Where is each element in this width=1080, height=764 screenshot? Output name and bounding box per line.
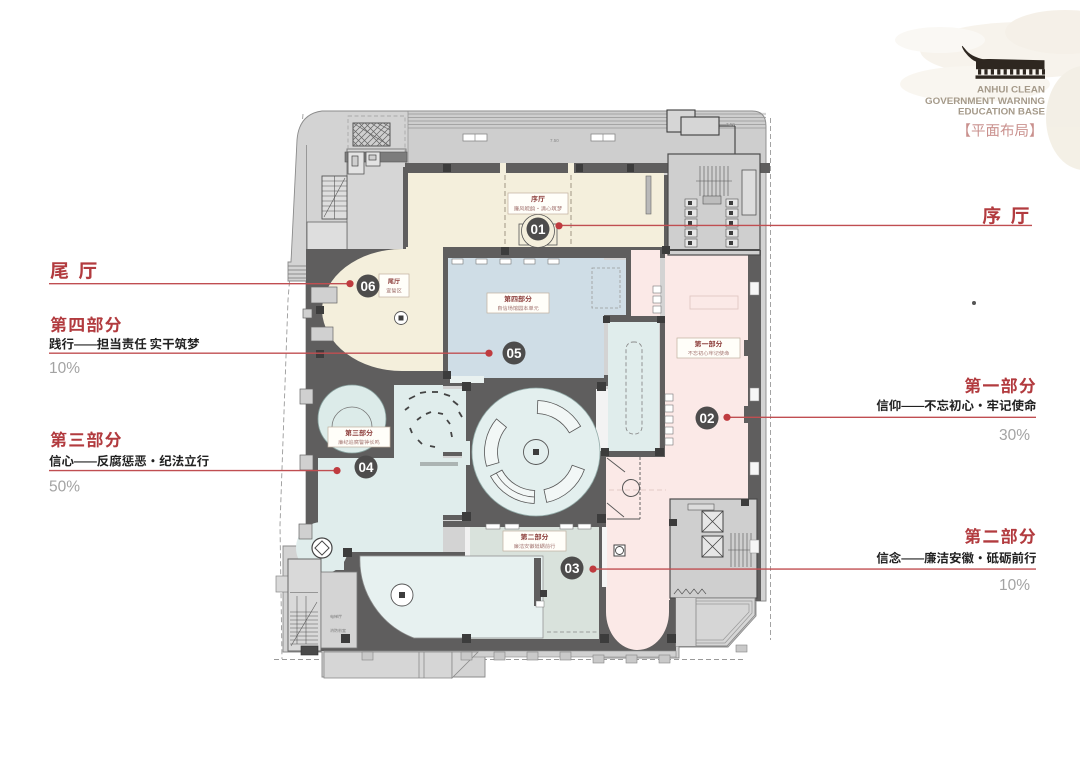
svg-text:GOVERNMENT WARNING: GOVERNMENT WARNING — [925, 96, 1045, 107]
svg-text:ANHUI CLEAN: ANHUI CLEAN — [977, 85, 1045, 96]
svg-text:05: 05 — [506, 346, 522, 361]
svg-text:04: 04 — [358, 460, 374, 475]
svg-text:50%: 50% — [49, 479, 80, 496]
svg-text:EDUCATION BASE: EDUCATION BASE — [958, 107, 1045, 118]
svg-text:7.50: 7.50 — [726, 122, 735, 127]
svg-text:7.50: 7.50 — [550, 138, 559, 143]
svg-text:03: 03 — [564, 561, 580, 576]
svg-text:06: 06 — [360, 279, 376, 294]
svg-text:30%: 30% — [999, 427, 1030, 444]
svg-text:10%: 10% — [49, 360, 80, 377]
svg-text:10%: 10% — [999, 577, 1030, 594]
svg-text:01: 01 — [530, 222, 546, 237]
svg-text:02: 02 — [699, 411, 714, 426]
